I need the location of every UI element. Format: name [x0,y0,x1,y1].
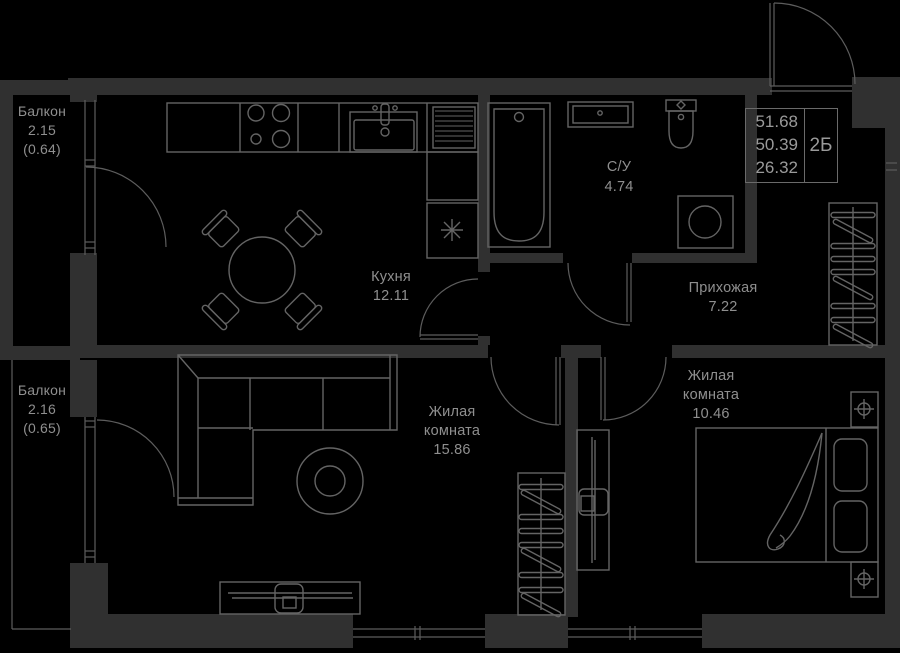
entrance-threshold [770,86,852,91]
area-living: 26.32 [746,156,798,179]
kitchen-door-icon [420,279,478,339]
nightstand-lamp-icon [854,569,874,589]
living-door-icon [491,357,560,425]
balcony1-window-icon [85,100,95,255]
balcony1-door-icon [86,167,166,247]
apartment-areas: 51.68 50.39 26.32 [746,109,804,182]
bathroom-door-icon [568,263,631,325]
tv-stand-icon [220,582,360,614]
living-wardrobe-icon [518,473,565,618]
pillow-icon [834,501,867,552]
blanket-icon [768,433,822,550]
nightstand-icon [851,562,878,597]
door-layer [86,3,855,497]
bedroom-door-icon [601,357,666,420]
balcony2-railing [12,360,71,629]
vent-appliance-icon [433,107,475,148]
dining-table-icon [201,209,323,331]
washing-machine-icon [678,196,733,248]
floor-plan-canvas: Балкон 2.15 (0.64) Балкон 2.16 (0.65) Ку… [0,0,900,653]
kitchen-counter-icon [167,103,478,152]
balcony2-door-icon [97,420,174,497]
stove-icon [248,105,290,148]
living-window-icon [353,626,485,640]
bed-icon [696,428,878,562]
area-total: 51.68 [746,110,798,133]
floor-plan [0,0,900,653]
hallway-wardrobe-icon [829,203,877,349]
toilet-icon [666,100,696,148]
bedroom-tv-icon [577,430,609,570]
nightstand-icon [851,392,878,427]
pillow-icon [834,439,867,491]
kitchen-sink-icon [350,104,417,152]
area-no-balcony: 50.39 [746,133,798,156]
pouf-icon [297,448,363,514]
bedroom-window-icon [568,626,702,640]
fridge-icon [427,152,478,258]
entrance-door-icon [770,3,855,86]
snowflake-icon [441,219,463,241]
apartment-info-box: 51.68 50.39 26.32 2Б [745,108,838,183]
vanity-sink-icon [568,102,633,127]
sofa-icon [178,355,397,505]
nightstand-lamp-icon [854,399,874,419]
balcony2-window-icon [85,417,95,563]
bathtub-icon [488,103,550,247]
unit-type-badge: 2Б [804,109,837,182]
